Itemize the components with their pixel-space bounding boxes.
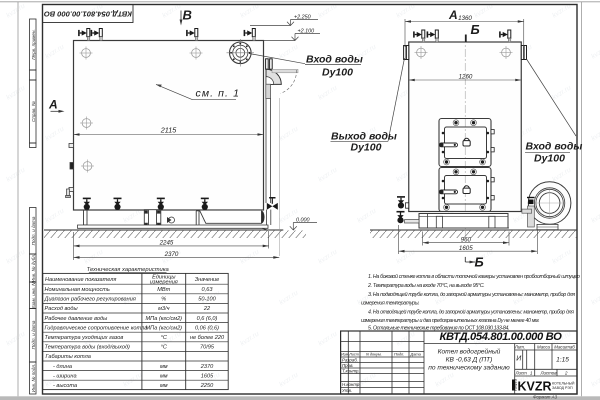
- svg-text:Котел водогрейный: Котел водогрейный: [438, 348, 501, 356]
- svg-text:2370: 2370: [164, 251, 179, 258]
- svg-text:МПа (кгс/см2): МПа (кгс/см2): [146, 325, 183, 331]
- svg-text:0.000: 0.000: [296, 217, 310, 223]
- svg-text:2: 2: [564, 371, 568, 376]
- svg-text:Подп. и дата: Подп. и дата: [31, 216, 36, 245]
- svg-text:50-100: 50-100: [198, 297, 216, 303]
- svg-text:Номинальная мощность: Номинальная мощность: [45, 287, 110, 293]
- svg-text:Н.контр.: Н.контр.: [342, 382, 361, 387]
- svg-text:+2.250: +2.250: [294, 14, 311, 20]
- svg-text:- высота: - высота: [53, 383, 77, 389]
- svg-text:Техническая характеристика: Техническая характеристика: [87, 267, 170, 273]
- svg-text:KVZR: KVZR: [518, 379, 552, 393]
- svg-text:Взам. инв. №: Взам. инв. №: [31, 281, 36, 309]
- svg-text:Инв. № подл.: Инв. № подл.: [31, 364, 36, 393]
- svg-text:Перв. примен.: Перв. примен.: [31, 29, 36, 60]
- svg-text:%: %: [161, 297, 166, 303]
- svg-text:- длина: - длина: [53, 364, 72, 370]
- svg-text:КВТД.054.801.00.000 ВО: КВТД.054.801.00.000 ВО: [440, 331, 563, 343]
- svg-text:Т.контр.: Т.контр.: [342, 368, 360, 373]
- svg-text:м3/ч: м3/ч: [158, 306, 169, 312]
- svg-text:Гидравлическое сопротивление к: Гидравлическое сопротивление котла: [45, 325, 148, 331]
- svg-text:Вход воды: Вход воды: [526, 141, 583, 153]
- svg-text:Диапазон рабочего регулировани: Диапазон рабочего регулирования: [44, 297, 136, 303]
- svg-text:- ширина: - ширина: [53, 373, 77, 379]
- svg-text:1:15: 1:15: [556, 357, 569, 364]
- svg-text:Пров.: Пров.: [342, 363, 354, 368]
- svg-text:N докум.: N докум.: [366, 352, 382, 357]
- svg-text:Dy100: Dy100: [351, 142, 382, 154]
- svg-text:70/95: 70/95: [200, 345, 215, 351]
- svg-text:Б: Б: [471, 22, 480, 37]
- svg-text:Вход воды: Вход воды: [306, 54, 363, 66]
- svg-text:Dy100: Dy100: [534, 153, 565, 165]
- svg-text:Подп.: Подп.: [394, 352, 404, 357]
- svg-text:Dy100: Dy100: [322, 67, 353, 79]
- svg-text:мм: мм: [160, 364, 168, 370]
- svg-text:1. На боковой стенке котла в: 1. На боковой стенке котла в области топ…: [368, 273, 580, 280]
- svg-text:Подп. и дата: Подп. и дата: [31, 320, 36, 349]
- svg-text:Температура уходящих газов: Температура уходящих газов: [45, 335, 124, 341]
- svg-text:1260: 1260: [459, 74, 473, 81]
- svg-text:МПа (кгс/см2): МПа (кгс/см2): [146, 316, 183, 322]
- svg-text:измерения: измерения: [150, 280, 178, 286]
- svg-text:см. п. 1: см. п. 1: [196, 87, 241, 99]
- svg-text:2245: 2245: [159, 240, 174, 247]
- svg-text:°С: °С: [161, 345, 168, 351]
- svg-text:0,6 (6,0): 0,6 (6,0): [197, 316, 218, 322]
- svg-text:Расход воды: Расход воды: [45, 306, 78, 312]
- svg-text:Утв.: Утв.: [342, 388, 352, 393]
- svg-text:А: А: [448, 8, 458, 22]
- svg-text:не более 220: не более 220: [190, 335, 225, 341]
- svg-text:Листов: Листов: [540, 371, 558, 376]
- svg-text:2. Температура воды на входе: 2. Температура воды на входе 70°С, на вы…: [367, 283, 484, 289]
- svg-text:Габариты котла: Габариты котла: [46, 354, 91, 360]
- svg-text:по техническому заданию: по техническому заданию: [428, 364, 510, 372]
- svg-text:1605: 1605: [459, 245, 473, 252]
- svg-text:Масштаб: Масштаб: [554, 344, 575, 349]
- svg-text:КВТД.054.801.00.000 ВО: КВТД.054.801.00.000 ВО: [44, 10, 132, 19]
- svg-text:Значение: Значение: [195, 277, 220, 283]
- svg-text:Дата: Дата: [410, 352, 422, 357]
- svg-text:+2.100: +2.100: [298, 28, 315, 34]
- svg-text:0,06 (0,6): 0,06 (0,6): [195, 325, 219, 331]
- svg-text:Масса: Масса: [537, 344, 551, 349]
- svg-text:3. На подводящей трубе котла,: 3. На подводящей трубе котла, до запорно…: [368, 291, 575, 298]
- svg-text:мм: мм: [160, 373, 168, 379]
- svg-text:4. На отводящей трубе котла,: 4. На отводящей трубе котла, до запорной…: [368, 309, 574, 316]
- svg-text:Справ. №: Справ. №: [31, 101, 36, 122]
- svg-text:0,63: 0,63: [202, 287, 214, 293]
- svg-text:Лит.: Лит.: [514, 344, 525, 349]
- svg-text:Изм.: Изм.: [341, 353, 349, 357]
- svg-text:Лист: Лист: [515, 371, 528, 376]
- svg-text:Температура воды (вход/выход): Температура воды (вход/выход): [45, 345, 131, 351]
- svg-text:В: В: [183, 8, 192, 23]
- svg-text:измерения температуры.: измерения температуры.: [361, 301, 419, 307]
- svg-text:Наименование показателя: Наименование показателя: [45, 277, 116, 283]
- svg-text:960: 960: [461, 236, 472, 243]
- svg-text:А: А: [48, 97, 58, 111]
- svg-text:ЗАВОД РЭП: ЗАВОД РЭП: [552, 386, 573, 390]
- svg-text:Формат А3: Формат А3: [533, 394, 558, 399]
- svg-text:КВ -0,63 Д (ПТ): КВ -0,63 Д (ПТ): [446, 357, 493, 364]
- svg-text:22: 22: [203, 306, 211, 312]
- svg-text:Лист: Лист: [348, 353, 359, 357]
- svg-text:2115: 2115: [160, 126, 177, 135]
- svg-text:измерения температуры и два пр: измерения температуры и два предохраните…: [361, 318, 539, 324]
- svg-text:МВт: МВт: [157, 287, 170, 293]
- svg-text:КОТЕЛЬНЫЙ: КОТЕЛЬНЫЙ: [552, 382, 575, 386]
- svg-text:Инв. № дубл.: Инв. № дубл.: [31, 254, 36, 282]
- svg-text:мм: мм: [160, 383, 168, 389]
- svg-text:1605: 1605: [201, 373, 214, 379]
- svg-text:Б: Б: [475, 255, 484, 270]
- svg-text:2370: 2370: [200, 364, 214, 370]
- svg-text:°С: °С: [161, 335, 168, 341]
- svg-text:2250: 2250: [200, 383, 214, 389]
- svg-text:Разраб.: Разраб.: [342, 358, 358, 363]
- svg-text:Рабочее давление воды: Рабочее давление воды: [45, 316, 108, 322]
